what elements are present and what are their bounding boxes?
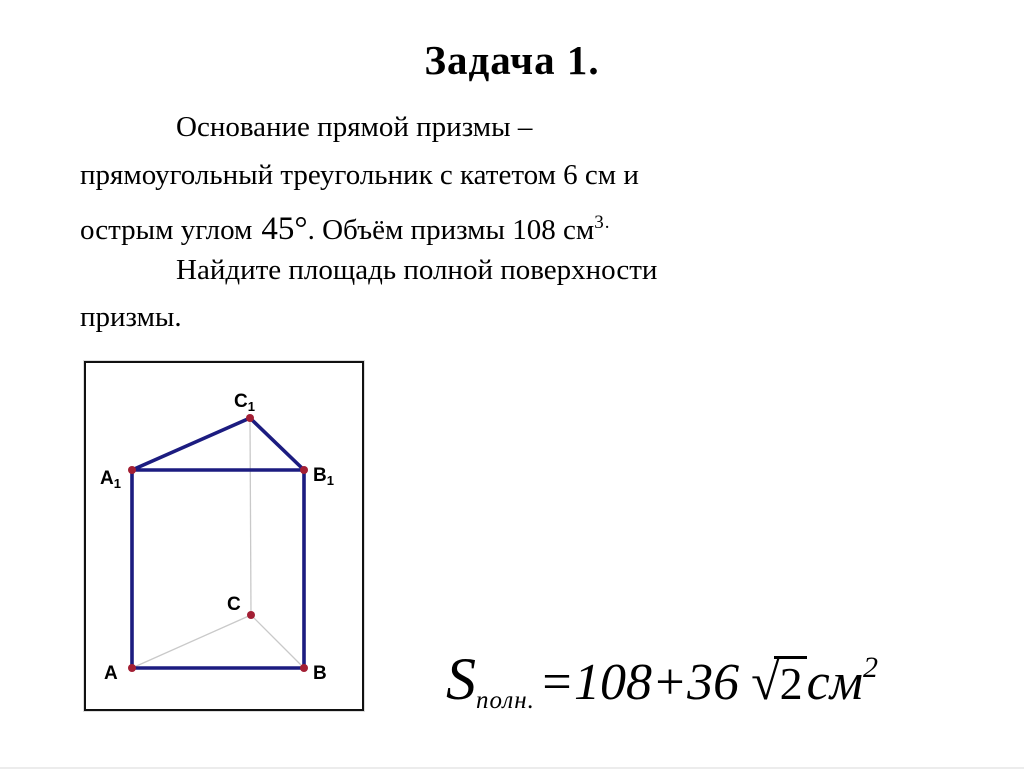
vertex-dot-A1	[128, 466, 136, 474]
formula-subscript: полн.	[476, 687, 535, 714]
vertex-label-C1: C1	[234, 391, 255, 414]
vertex-dot-C1	[246, 414, 254, 422]
hidden-edge-CC1	[250, 418, 251, 615]
formula-exponent: 2	[863, 651, 878, 684]
problem-line-4: Найдите площадь полной поверхности	[80, 247, 920, 295]
prism-diagram: A B C A1 B1 C1	[84, 361, 364, 711]
vertex-dot-B	[300, 664, 308, 672]
vertex-label-A: A	[104, 663, 118, 684]
square-root: √2	[751, 653, 807, 712]
problem-line-3: острым углом45°. Объём призмы 108 см3.	[80, 199, 920, 247]
vertex-dot-C	[247, 611, 255, 619]
top-face-A1C1B1	[132, 418, 304, 470]
formula-unit: см	[807, 654, 863, 711]
problem-line-2: прямоугольный треугольник с катетом 6 см…	[80, 152, 920, 200]
vertex-dot-B1	[300, 466, 308, 474]
slide: Задача 1. Основание прямой призмы – прям…	[0, 0, 1024, 769]
prism-svg: A B C A1 B1 C1	[86, 363, 362, 709]
line3-pre: острым углом	[80, 214, 252, 246]
line3-mid: . Объём призмы 108 см	[308, 214, 595, 246]
vertex-label-C: C	[227, 594, 241, 615]
vertex-label-A1: A1	[100, 468, 121, 491]
formula-symbol: S	[446, 646, 476, 712]
angle-value: 45	[261, 211, 294, 247]
hidden-edge-AC	[132, 615, 251, 668]
volume-exponent: 3.	[594, 212, 610, 233]
problem-line-1: Основание прямой призмы –	[80, 104, 920, 152]
degree-symbol: °	[294, 211, 307, 247]
answer-formula: Sполн.=108+36√2см2	[446, 645, 878, 715]
vertex-dot-A	[128, 664, 136, 672]
formula-expression: =108+36	[539, 654, 739, 711]
vertex-label-B1: B1	[313, 465, 334, 488]
problem-line-5: призмы.	[80, 294, 920, 342]
hidden-edge-BC	[251, 615, 304, 668]
page-title: Задача 1.	[0, 36, 1024, 84]
radicand: 2	[774, 656, 807, 710]
problem-text: Основание прямой призмы – прямоугольный …	[80, 104, 920, 342]
vertex-label-B: B	[313, 663, 327, 684]
front-face-edges	[132, 470, 304, 668]
